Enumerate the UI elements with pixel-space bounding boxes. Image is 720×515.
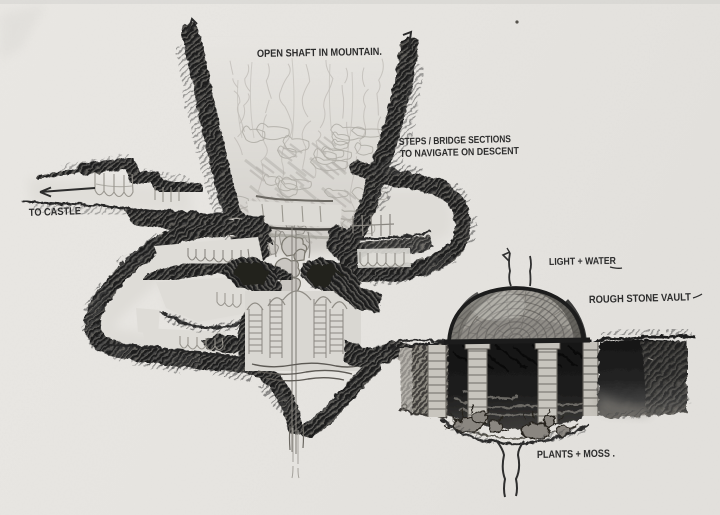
svg-text:PLANTS + MOSS .: PLANTS + MOSS . [537,448,615,461]
svg-text:OPEN SHAFT IN MOUNTAIN.: OPEN SHAFT IN MOUNTAIN. [257,46,382,60]
svg-text:TO CASTLE: TO CASTLE [29,205,81,219]
svg-text:LIGHT + WATER: LIGHT + WATER [549,256,617,268]
